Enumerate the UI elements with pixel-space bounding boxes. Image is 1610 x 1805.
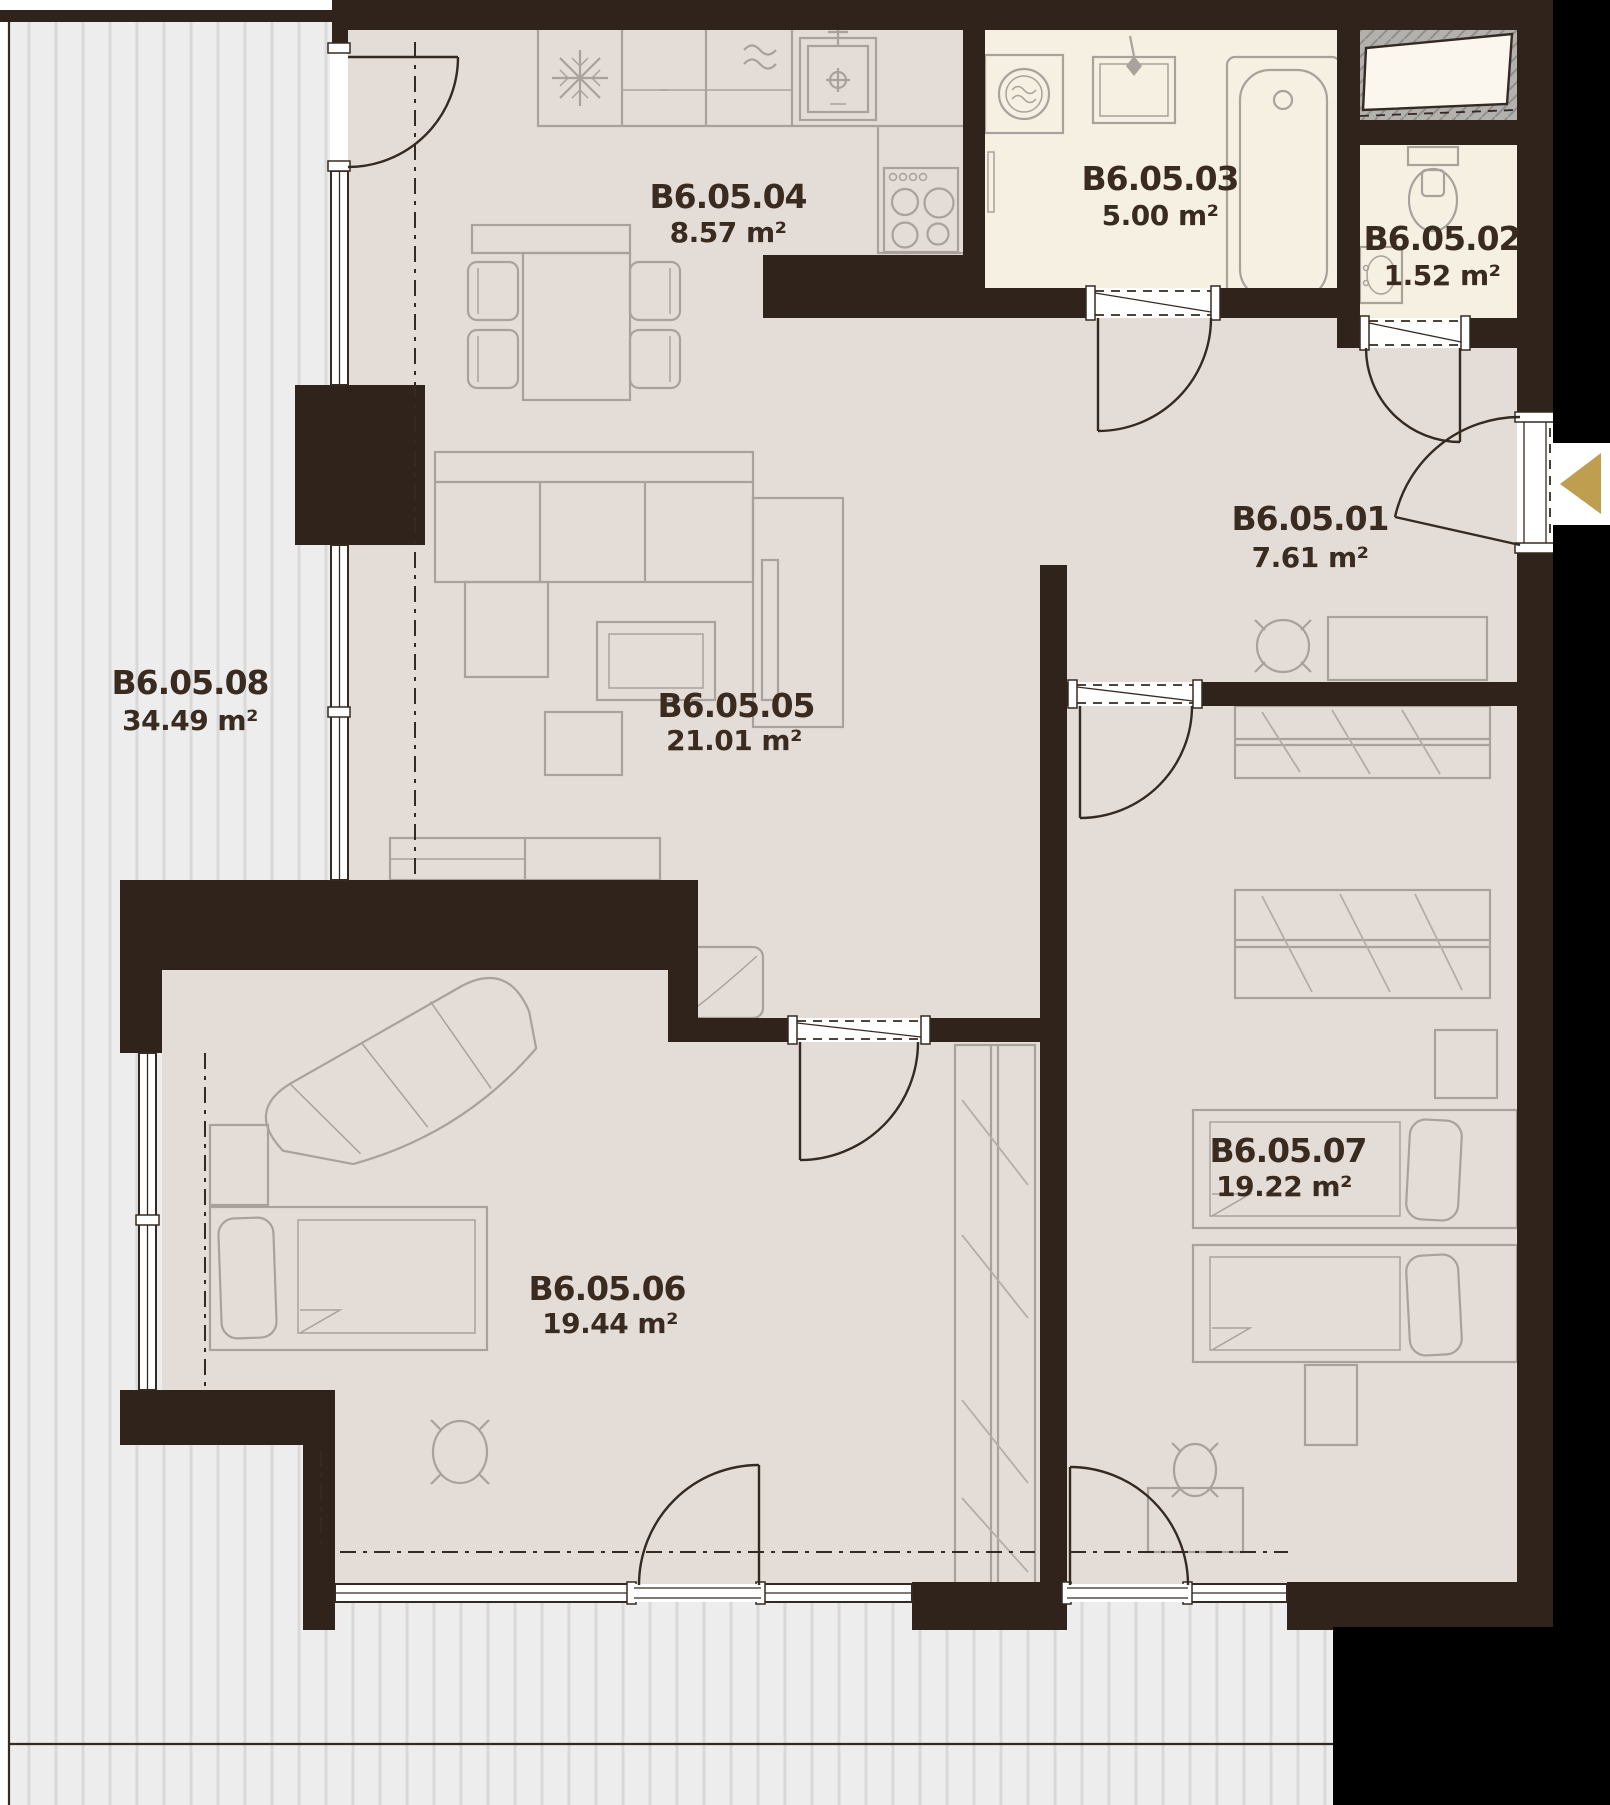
room-label-terrace-area: 34.49 m² <box>122 704 258 737</box>
room-label-bedroom-1-code: B6.05.06 <box>528 1269 685 1308</box>
room-label-wc-area: 1.52 m² <box>1384 259 1501 292</box>
outside-right <box>1553 0 1610 1805</box>
room-label-bedroom-1-area: 19.44 m² <box>542 1307 678 1340</box>
terrace-top-edge <box>0 10 338 22</box>
window-facade-lower <box>328 545 350 880</box>
room-label-wc-code: B6.05.02 <box>1363 219 1520 258</box>
room-label-bedroom-2-code: B6.05.07 <box>1209 1131 1366 1170</box>
shaft <box>1360 30 1517 120</box>
fridge-icon <box>552 50 608 106</box>
floor-plan: B6.05.01 7.61 m² B6.05.02 1.52 m² B6.05.… <box>0 0 1610 1805</box>
room-label-entry-hall-area: 7.61 m² <box>1252 541 1369 574</box>
window-bedroom-1-side <box>136 1053 159 1390</box>
window-facade-upper <box>331 171 348 385</box>
room-label-entry-hall-code: B6.05.01 <box>1231 499 1388 538</box>
room-label-kitchen-area: 8.57 m² <box>670 216 787 249</box>
room-label-bathroom-area: 5.00 m² <box>1102 199 1219 232</box>
room-label-bedroom-2-area: 19.22 m² <box>1216 1170 1352 1203</box>
room-label-terrace-code: B6.05.08 <box>111 663 268 702</box>
outside-bottom-right <box>1333 1627 1553 1805</box>
entry-marker <box>1550 428 1610 540</box>
room-label-kitchen-code: B6.05.04 <box>649 177 806 216</box>
room-label-bathroom-code: B6.05.03 <box>1081 159 1238 198</box>
room-label-living-code: B6.05.05 <box>657 686 814 725</box>
room-label-living-area: 21.01 m² <box>666 724 802 757</box>
window-bedroom-1-bottom <box>335 1582 912 1604</box>
